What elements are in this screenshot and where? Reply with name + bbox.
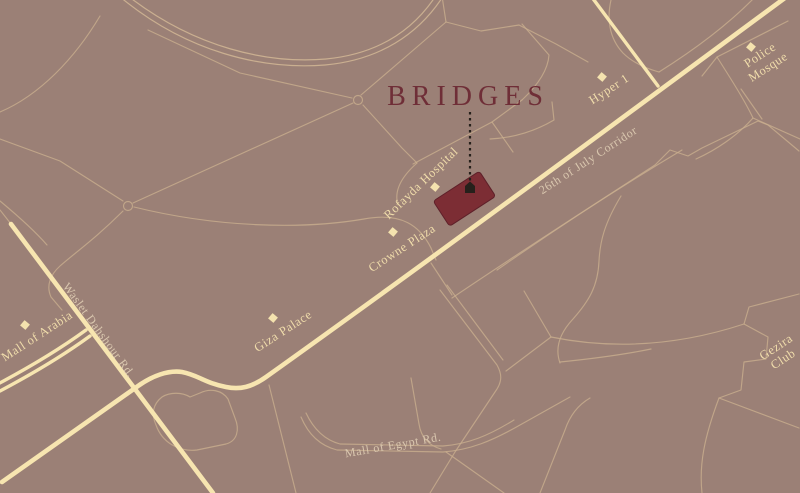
- map-canvas: BRIDGES Rofayda Hospital Crowne Plaza Hy…: [0, 0, 800, 493]
- location-map: BRIDGES Rofayda Hospital Crowne Plaza Hy…: [0, 0, 800, 493]
- project-title-label: BRIDGES: [387, 81, 549, 112]
